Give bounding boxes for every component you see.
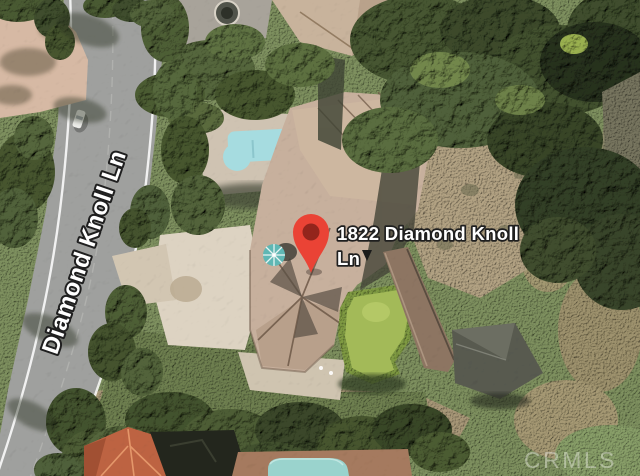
shadow-structure xyxy=(150,430,248,476)
court-stain xyxy=(170,276,202,302)
marker-address-line1: 1822 Diamond Knoll xyxy=(337,223,519,244)
marker-address-line2: Ln xyxy=(337,248,360,269)
bottom-pool-area xyxy=(232,449,412,476)
satellite-map[interactable]: Diamond Knoll Ln CRMLS 1822 Diamond Knol… xyxy=(0,0,640,476)
watermark: CRMLS xyxy=(524,447,617,473)
